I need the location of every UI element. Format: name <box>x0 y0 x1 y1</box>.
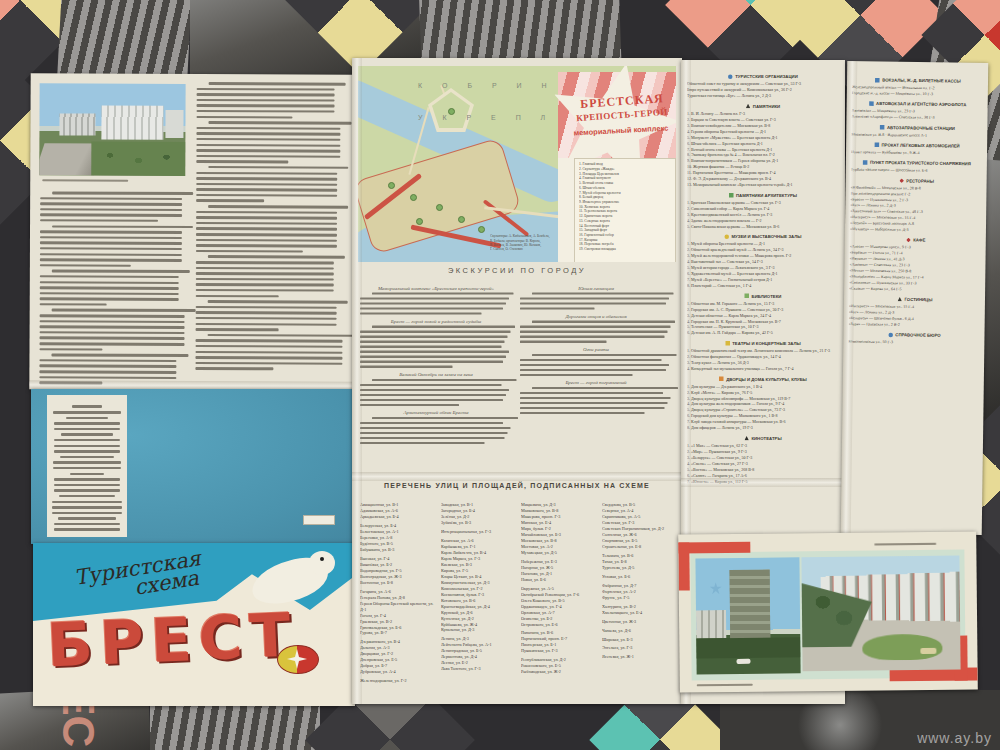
tower-photo <box>695 557 800 674</box>
pseudo-line <box>520 341 607 343</box>
excursion-heading: Брест — город новой и радостной судьбы <box>360 318 512 324</box>
directory-item: «Заря» — Граевская ул., 2 В-2 <box>849 321 981 328</box>
list-item: Чапаева, ул. Д-6 <box>602 627 677 633</box>
section-icon <box>745 294 750 299</box>
directory-item: 10. Жертвам фашизма — Речица В-2 <box>687 165 839 170</box>
directory-section-heading: ДВОРЦЫ И ДОМА КУЛЬТУРЫ, КЛУБЫ <box>687 376 839 381</box>
directory-item: 11. Партизанам Брестчины — Машерова прос… <box>687 171 839 176</box>
directory-section-heading: РЕСТОРАНЫ <box>851 177 983 184</box>
pseudo-line <box>520 412 645 414</box>
photo-low-building <box>696 610 726 638</box>
directory-item: 8. Дом офицеров — Ленина ул., 19 Г-3 <box>687 425 839 430</box>
directory-item: 1. Областной драматический театр им. Лен… <box>687 348 839 353</box>
pseudo-line <box>196 233 337 236</box>
pseudo-paragraph <box>196 300 344 331</box>
pseudo-line <box>520 326 670 328</box>
directory-item: «Сказка» — Кирова ул., 64 Г-5 <box>849 286 981 293</box>
directory-section-heading: ВОКЗАЛЫ, Ж.-Д. БИЛЕТНЫЕ КАССЫ <box>852 77 984 84</box>
pseudo-line <box>54 484 119 487</box>
directory-section: ПАМЯТНИКИ1. В. И. Ленину — Ленина пл. Г-… <box>687 104 839 188</box>
section-title: ГОСТИНИЦЫ <box>904 297 932 302</box>
pseudo-line <box>360 437 504 439</box>
pseudo-line <box>196 172 337 175</box>
section-icon <box>725 341 730 346</box>
photo-tower-building <box>730 570 771 648</box>
section-icon <box>725 234 730 239</box>
pseudo-line <box>196 132 340 135</box>
pseudo-line <box>40 342 185 345</box>
directory-item: 8. Экипажу бронепоезда № 4 — Вокзальная … <box>687 153 839 158</box>
list-item: Гурова, ул. В-7 <box>360 630 435 636</box>
pseudo-line <box>197 110 335 113</box>
pseudo-line <box>520 336 664 338</box>
pseudo-line <box>196 216 337 219</box>
directory-item: 2. Симеоновский собор — Карла Маркса ул.… <box>687 206 839 211</box>
list-item: Г. Сысоев, О. Стахович <box>490 247 570 251</box>
photo-bus <box>920 648 936 654</box>
pseudo-line <box>532 321 675 323</box>
pseudo-line <box>54 523 121 526</box>
excursion-heading: Брест — город пограничный <box>520 380 672 386</box>
pattern-photo <box>57 0 193 83</box>
pseudo-line <box>40 292 179 295</box>
section-icon <box>869 101 874 106</box>
pseudo-line <box>196 323 337 326</box>
directory-section: ТЕАТРЫ И КОНЦЕРТНЫЕ ЗАЛЫ1. Областной дра… <box>687 341 839 372</box>
pseudo-line <box>53 411 122 414</box>
directory-section-heading: ТУРИСТСКИЕ ОРГАНИЗАЦИИ <box>687 74 839 79</box>
price-label <box>303 515 335 525</box>
tree-marker <box>458 216 465 223</box>
directory-item: 2. «Мир» — Пушкинская ул., 9 Г-3 <box>687 449 839 454</box>
section-title: ТУРИСТСКИЕ ОРГАНИЗАЦИИ <box>735 74 798 79</box>
pseudo-line <box>360 307 503 309</box>
pseudo-paragraph <box>52 433 122 452</box>
pseudo-line <box>520 402 667 404</box>
tree-marker <box>478 226 485 233</box>
directory-item: «Мухавец» — Набережная ул. Д-3 <box>850 227 982 234</box>
photo-car <box>736 659 750 664</box>
directory-section-heading: АВТОЗАПРАВОЧНЫЕ СТАНЦИИ <box>851 124 983 131</box>
pseudo-line <box>196 183 337 186</box>
section-title: ДВОРЦЫ И ДОМА КУЛЬТУРЫ, КЛУБЫ <box>726 376 807 381</box>
pseudo-line <box>72 405 102 408</box>
list-item: Мухавецкая, ул. Д-5 <box>521 550 596 556</box>
pseudo-line <box>360 399 503 401</box>
pseudo-line <box>40 197 182 200</box>
red-corner-top-left-v <box>678 542 690 590</box>
list-item: Зубачёва, ул. В-3 <box>441 520 516 526</box>
pseudo-line <box>52 501 121 504</box>
pseudo-line <box>40 230 182 233</box>
directory-item: 2. Областная филармония — Орджоникидзе у… <box>687 354 839 359</box>
pseudo-line <box>520 359 661 361</box>
directory-item: 1. «1 Мая» — Советская ул., 62 Г-3 <box>687 443 839 448</box>
pseudo-line <box>197 88 335 91</box>
pseudo-line <box>196 328 279 331</box>
pseudo-line <box>196 155 340 158</box>
pseudo-paragraph <box>52 495 122 514</box>
directory-item: 6. Художественный музей — Брестская креп… <box>687 271 839 276</box>
pseudo-line <box>40 214 182 217</box>
directory-item: 2. Клуб «Мечта» — Кирова ул., 76 Г-5 <box>687 390 839 395</box>
pseudo-line <box>208 166 349 169</box>
pseudo-line <box>520 302 666 304</box>
directory-item: Турбаза «Белое озеро» — Шоссейная ул. Е-… <box>851 167 983 174</box>
list-item: Интернациональная, ул. Г-3 <box>441 529 516 535</box>
pseudo-paragraph <box>52 456 122 470</box>
list-item: Хмельницкого, ул. Е-4 <box>602 609 677 615</box>
pseudo-line <box>196 295 279 298</box>
directory-item: 8. Планетарий — Советская ул., 1 Г-4 <box>687 283 839 288</box>
list-item: Новая, ул. Б-6 <box>521 577 596 583</box>
section-title: РЕСТОРАНЫ <box>906 178 934 183</box>
pseudo-line <box>40 203 182 206</box>
list-item: Цветочная, ул. Ж-3 <box>602 618 677 624</box>
directory-section-heading: ПУНКТ ПРОКАТА ТУРИСТСКОГО СНАРЯЖЕНИЯ <box>851 160 983 167</box>
pseudo-line <box>40 326 185 329</box>
photo-building <box>59 113 95 135</box>
directory-section-heading: ПАМЯТНИКИ АРХИТЕКТУРЫ <box>687 193 839 198</box>
pseudo-line <box>208 121 352 124</box>
pseudo-line <box>39 376 176 379</box>
pseudo-line <box>360 331 510 333</box>
directory-item: 9. Воинам-пограничникам — Героев обороны… <box>687 159 839 164</box>
pseudo-line <box>360 297 509 299</box>
pseudo-line <box>520 307 594 309</box>
section-icon <box>897 297 902 302</box>
list-item: Аркадьевская, ул. Б-4 <box>360 514 435 520</box>
directory-section: АВТОЗАПРАВОЧНЫЕ СТАНЦИИМосковская ул. В-… <box>851 124 983 139</box>
pseudo-line <box>520 297 669 299</box>
pseudo-paragraph <box>52 405 122 413</box>
street-col-1: Авиационная, ул. В-1Адамковская, ул. А-6… <box>360 502 435 684</box>
directory-item: 1. В. И. Ленину — Ленина пл. Г-3 <box>687 111 839 116</box>
pseudo-line <box>196 138 340 141</box>
section-icon <box>875 143 880 148</box>
pseudo-paragraph <box>40 225 186 267</box>
pseudo-line <box>520 369 666 371</box>
pseudo-line <box>196 144 340 147</box>
directory-item: 3. «Беларусь» — Советская ул., 50 Г-3 <box>687 455 839 460</box>
directory-item: 7. Музей «Берестье» — Госпитальный остро… <box>687 277 839 282</box>
pseudo-line <box>196 278 334 281</box>
section-icon <box>719 377 724 382</box>
directory-section: ПРОКАТ ЛЕГКОВЫХ АВТОМОБИЛЕЙПункт проката… <box>851 142 983 157</box>
directory-section: БИБЛИОТЕКИ1. Областная им. М. Горького —… <box>687 293 839 335</box>
pseudo-line <box>360 361 503 363</box>
section-icon <box>863 160 868 165</box>
directory-section: ПАМЯТНИКИ АРХИТЕКТУРЫ1. Братская Николае… <box>687 193 839 229</box>
pseudo-line <box>53 461 122 464</box>
excursion-heading: Дорогами отцов и обелисков <box>520 313 672 319</box>
directory-item: 2. Борцам за Советскую власть — Советска… <box>687 117 839 122</box>
pseudo-line <box>40 236 182 239</box>
watermark: www.ay.by <box>917 730 992 746</box>
list-item: Энгельса, ул. Г-3 <box>602 645 677 651</box>
directory-item: 4. Концертный зал музыкального училища —… <box>687 366 839 371</box>
directory-section: СПРАВОЧНОЕ БЮРОКомсомольская ул., 50 Г-3 <box>848 332 980 347</box>
panel-directory-2: ВОКЗАЛЫ, Ж.-Д. БИЛЕТНЫЕ КАССЫЖелезнодоро… <box>841 61 989 535</box>
section-title: МУЗЕИ И ВЫСТАВОЧНЫЕ ЗАЛЫ <box>732 234 802 239</box>
pseudo-line <box>196 317 337 320</box>
directory-item: Пункт проката — Куйбышева ул., 9 Ж-4 <box>851 150 983 157</box>
directory-item: 7. Вечный огонь славы — Брестская крепос… <box>687 147 839 152</box>
pseudo-line <box>196 272 334 275</box>
directory-item: 3. Дворец культуры облсовпрофа — Московс… <box>687 396 839 401</box>
pseudo-line <box>40 337 185 340</box>
pseudo-line <box>196 149 340 152</box>
excursion-heading: Огни рампы <box>520 346 672 352</box>
pseudo-line <box>532 293 673 295</box>
list-item: Островского, ул. Е-6 <box>521 621 596 627</box>
section-icon <box>744 436 749 441</box>
directory-item: Областной совет по туризму и экскурсиям … <box>687 82 839 87</box>
directory-section: ТУРИСТСКИЕ ОРГАНИЗАЦИИОбластной совет по… <box>687 74 839 99</box>
section-icon <box>746 104 751 109</box>
city-street-photo <box>39 83 185 176</box>
excursion-heading: Великий Октябрь на земле на века <box>360 371 512 377</box>
pseudo-line <box>40 219 158 222</box>
section-title: ПАМЯТНИКИ <box>753 104 780 109</box>
section-title: АВТОЗАПРАВОЧНЫЕ СТАНЦИИ <box>887 125 955 131</box>
pseudo-line <box>360 366 453 368</box>
pseudo-line <box>360 404 459 406</box>
pseudo-line <box>40 258 182 261</box>
street-index-columns: Авиационная, ул. В-1Адамковская, ул. А-6… <box>360 496 676 696</box>
directory-item: 2. Городская им. А. С. Пушкина — Советск… <box>687 307 839 312</box>
directory-section: ГОСТИНИЦЫ«Интурист» — Московская ул., 15… <box>849 296 981 328</box>
pseudo-line <box>54 439 121 442</box>
pseudo-line <box>196 239 337 242</box>
pseudo-line <box>196 289 334 292</box>
pseudo-line <box>61 433 114 436</box>
pseudo-paragraph <box>196 166 344 203</box>
directory-section-heading: ТЕАТРЫ И КОНЦЕРТНЫЕ ЗАЛЫ <box>687 341 839 346</box>
imprint-text <box>52 405 122 531</box>
publisher-logo-icon <box>277 645 319 674</box>
pseudo-line <box>520 364 669 366</box>
pseudo-line <box>196 194 337 197</box>
directory-section-heading: КАФЕ <box>850 237 982 244</box>
street-col-3: Мицкевича, ул. Д-3Маяковского, ул. В-8Ма… <box>521 502 596 675</box>
pseudo-line <box>39 359 176 362</box>
pseudo-line <box>60 456 115 459</box>
pseudo-line <box>520 407 664 409</box>
pseudo-line <box>40 303 107 306</box>
pseudo-line <box>196 116 292 119</box>
pseudo-line <box>40 286 179 289</box>
photo-shrubs <box>696 637 800 658</box>
directory-item: 3. Крестовоздвиженский костёл — Ленина у… <box>687 212 839 217</box>
directory-section: ДВОРЦЫ И ДОМА КУЛЬТУРЫ, КЛУБЫ1. Дом куль… <box>687 376 839 430</box>
section-icon <box>906 238 911 243</box>
pseudo-line <box>197 104 335 107</box>
panel-photos <box>678 531 978 692</box>
map-note: Скульпторы: А. Кибальников, А. Бембель,В… <box>490 234 570 262</box>
panel-center: К О Б Р И Н С К О Е У К Р Е П Л Е Н И Е … <box>352 58 682 704</box>
directory-item: 4. Героям обороны Брестской крепости — Д… <box>687 129 839 134</box>
pseudo-line <box>40 298 179 301</box>
pseudo-line <box>196 222 337 225</box>
pseudo-line <box>196 199 264 202</box>
dove-eye <box>320 557 324 561</box>
pseudo-line <box>195 362 342 365</box>
list-item: Героев Обороны Брестской крепости, ул. Д… <box>360 600 435 612</box>
directory-item: 7. Клуб завода газовой аппаратуры — Моск… <box>687 420 839 425</box>
pseudo-paragraph <box>196 121 344 163</box>
directory-section-heading: МУЗЕИ И ВЫСТАВОЧНЫЕ ЗАЛЫ <box>687 234 839 239</box>
directory-section: КАФЕ«Алеся» — Машерова просп., 9 Г-3«Бер… <box>849 237 982 293</box>
pseudo-line <box>51 309 196 312</box>
pseudo-line <box>58 517 117 520</box>
intro-col-right <box>195 82 344 374</box>
pseudo-line <box>54 529 121 532</box>
pseudo-line <box>54 489 119 492</box>
street-photo <box>801 556 960 672</box>
list-item: Широкая, ул. Б-3 <box>602 636 677 642</box>
directory-section: КИНОТЕАТРЫ1. «1 Мая» — Советская ул., 62… <box>687 436 839 484</box>
pseudo-line <box>195 367 273 370</box>
directory-item: 6. Штык-обелиск — Брестская крепость Д-1 <box>687 141 839 146</box>
pseudo-line <box>40 247 182 250</box>
pseudo-line <box>54 422 119 425</box>
directory-section-heading: КИНОТЕАТРЫ <box>687 436 839 441</box>
pseudo-line <box>207 334 354 337</box>
list-item: Фрунзе, ул. Г-5 <box>602 594 677 600</box>
pseudo-paragraph <box>52 517 122 531</box>
pseudo-line <box>40 314 185 317</box>
list-item: Восточная, ул. Б-8 <box>360 580 435 586</box>
directory-item: 4. Городская им. Н. К. Крупской — Москов… <box>687 319 839 324</box>
directory-item: 5. Музей истории города — Леваневского у… <box>687 265 839 270</box>
photo-caption <box>42 179 128 182</box>
pseudo-line <box>39 365 176 368</box>
pseudo-line <box>360 356 506 358</box>
pseudo-line <box>208 300 349 303</box>
list-item: 19. Смотровая площадка <box>579 247 671 252</box>
panel-back-cover <box>31 389 358 544</box>
pseudo-line <box>197 99 335 102</box>
photo-caption-bottom <box>697 684 753 687</box>
pseudo-line <box>196 267 334 270</box>
street-index-heading: ПЕРЕЧЕНЬ УЛИЦ И ПЛОЩАДЕЙ, ПОДПИСАННЫХ НА… <box>352 482 682 489</box>
directory-column-1: ТУРИСТСКИЕ ОРГАНИЗАЦИИОбластной совет по… <box>687 74 839 484</box>
pseudo-line <box>372 417 518 419</box>
pseudo-line <box>196 188 337 191</box>
tree-marker <box>436 204 443 211</box>
dove-head <box>309 551 335 575</box>
caption-line <box>42 179 128 182</box>
directory-item: Комсомольская ул., 50 Г-3 <box>848 339 980 346</box>
directory-column-2: ВОКЗАЛЫ, Ж.-Д. БИЛЕТНЫЕ КАССЫЖелезнодоро… <box>848 77 984 346</box>
section-title: СПРАВОЧНОЕ БЮРО <box>895 332 940 338</box>
pseudo-line <box>360 302 506 304</box>
directory-item: 4. «Смена» — Советская ул., 27 Г-3 <box>687 461 839 466</box>
map-legend: 1. Главный вход2. Скульптура «Жажда»3. П… <box>574 158 676 262</box>
street-col-4: Свердлова, ул. В-5Северная, ул. А-4Скрип… <box>602 502 677 660</box>
pseudo-line <box>360 312 482 314</box>
pseudo-line <box>360 346 501 348</box>
directory-section: ПУНКТ ПРОКАТА ТУРИСТСКОГО СНАРЯЖЕНИЯТурб… <box>851 160 983 175</box>
pseudo-line <box>70 473 104 476</box>
list-item: Рыбзаводская, ул. Ж-2 <box>521 669 596 675</box>
section-title: КИНОТЕАТРЫ <box>751 436 781 441</box>
directory-item: 5. Техническая — Пушкинская ул., 10 Г-3 <box>687 325 839 330</box>
pseudo-line <box>40 320 185 323</box>
directory-item: 3. Театр кукол — Ленина ул., 56 Д-3 <box>687 360 839 365</box>
directory-item: 1. Музей обороны Брестской крепости — Д-… <box>687 242 839 247</box>
pseudo-paragraph <box>196 205 344 253</box>
directory-section: ВОКЗАЛЫ, Ж.-Д. БИЛЕТНЫЕ КАССЫЖелезнодоро… <box>852 77 984 97</box>
photo-building <box>165 110 183 138</box>
pseudo-line <box>520 392 663 394</box>
pseudo-line <box>196 177 337 180</box>
pseudo-line <box>360 442 485 444</box>
pseudo-line <box>196 306 337 309</box>
photo-star-decoration <box>710 582 722 594</box>
pseudo-line <box>532 354 676 356</box>
pseudo-line <box>372 326 515 328</box>
logo-star-icon <box>287 649 307 669</box>
pseudo-line <box>51 354 188 357</box>
pseudo-line <box>52 191 194 194</box>
pseudo-line <box>196 160 288 163</box>
pseudo-line <box>360 351 509 353</box>
pseudo-line <box>520 374 632 376</box>
pseudo-paragraph <box>52 473 122 492</box>
list-item: Угловая, ул. Б-6 <box>602 574 677 580</box>
pseudo-line <box>360 384 501 386</box>
pseudo-line <box>54 428 119 431</box>
photo-trees <box>91 142 185 176</box>
panel-intro <box>29 73 354 390</box>
pseudo-line <box>195 351 342 354</box>
pseudo-line <box>360 336 507 338</box>
pseudo-paragraph <box>52 417 122 431</box>
directory-item: Туристская гостиница «Буг» — Ленина ул.,… <box>687 93 839 98</box>
directory-item: 13. Мемориальный комплекс «Брестская кре… <box>687 182 839 187</box>
pseudo-line <box>372 379 516 381</box>
directory-item: Бюро путешествий и экскурсий — Комсомоль… <box>687 87 839 92</box>
pseudo-line <box>197 93 335 96</box>
fold-crease <box>352 58 362 704</box>
directory-item: 1. Дом культуры — Дзержинского ул., 1 В-… <box>687 384 839 389</box>
pseudo-line <box>196 261 334 264</box>
list-item: Пушкинская, ул. Г-3 <box>521 648 596 654</box>
pseudo-line <box>360 432 507 434</box>
tree-marker <box>416 218 423 225</box>
directory-item: 6. Детская им. А. П. Гайдара — Кирова ул… <box>687 331 839 336</box>
list-item: Строительная, ул. Е-8 <box>602 544 677 550</box>
fortress-map: К О Б Р И Н С К О Е У К Р Е П Л Е Н И Е … <box>358 66 676 262</box>
pseudo-line <box>39 348 102 351</box>
excursion-heading: Архитектурный облик Бреста <box>360 409 512 415</box>
directory-item: 5. Свято-Николаевская церковь — Московск… <box>687 224 839 229</box>
pseudo-line <box>40 275 179 278</box>
list-item: Льва Толстого, ул. Г-3 <box>441 666 516 672</box>
pseudo-line <box>532 387 678 389</box>
fold-crease <box>681 478 845 487</box>
tree-marker <box>388 182 395 189</box>
section-title: ВОКЗАЛЫ, Ж.-Д. БИЛЕТНЫЕ КАССЫ <box>882 78 961 84</box>
list-item: Бабушкина, ул. В-3 <box>360 547 435 553</box>
pseudo-line <box>196 127 340 130</box>
excursions-heading: ЭКСКУРСИИ ПО ГОРОДУ <box>352 266 682 275</box>
street-col-2: Заводская, ул. В-1Загородная, ул. Б-4Зел… <box>441 502 516 672</box>
section-icon <box>899 178 904 183</box>
pseudo-paragraph <box>39 309 185 351</box>
